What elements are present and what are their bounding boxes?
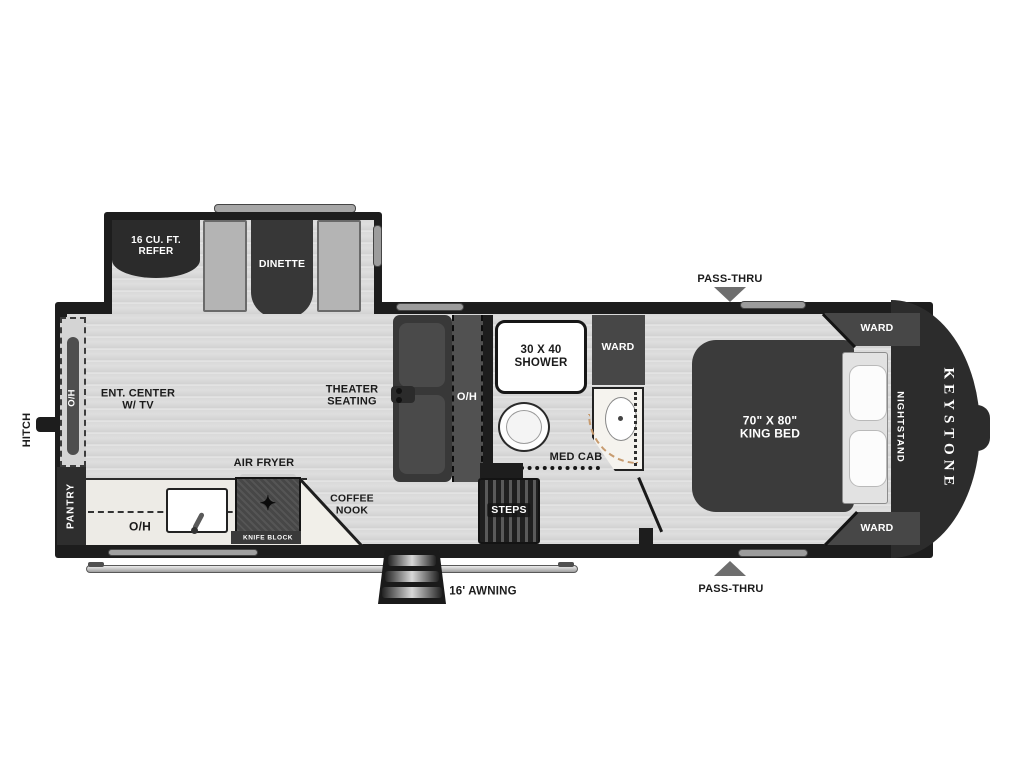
pantry-label: PANTRY: [65, 483, 76, 529]
faucet-base-icon: [191, 527, 198, 534]
pass-thru-bottom-door: [738, 549, 808, 557]
king-bed-label: 70" X 80" KING BED: [740, 415, 800, 442]
air-fryer-label: AIR FRYER: [234, 457, 295, 469]
pillow: [849, 430, 887, 487]
awning-label: 16' AWNING: [449, 586, 517, 599]
dinette-bench-left: [203, 220, 247, 312]
keystone-brand: KEYSTONE: [940, 367, 957, 490]
bath-wall: [483, 315, 493, 482]
steps-label: STEPS: [487, 503, 530, 517]
shower-label: 30 X 40 SHOWER: [515, 344, 568, 370]
hitch-label: HITCH: [21, 413, 33, 448]
cupholder-icon: [396, 388, 402, 394]
overhead-mid-label: O/H: [457, 391, 477, 403]
overhead-left-label: O/H: [68, 389, 79, 407]
pass-thru-top-door: [740, 301, 806, 309]
top-wall-door-tab: [396, 303, 464, 311]
theater-armrest: [391, 386, 415, 403]
bath-ward-label: WARD: [602, 342, 635, 354]
entry-step-tread: [382, 587, 442, 598]
floorplan: PASS-THRU 16 CU. FT. REFER DINETTE HITCH…: [0, 0, 1024, 768]
awning-end-cap: [88, 562, 104, 567]
knife-block-label: KNIFE BLOCK: [243, 534, 293, 541]
awning-bar: [86, 565, 578, 573]
ent-center-label: ENT. CENTER W/ TV: [101, 388, 175, 413]
pass-thru-up-arrow-icon: [714, 561, 746, 576]
burner-icon: ✦: [260, 493, 277, 515]
slideout-window: [373, 225, 382, 267]
entry-step-tread: [385, 571, 439, 582]
bedroom-door-stub: [639, 528, 653, 545]
theater-seat-back: [399, 395, 445, 474]
med-cab-label: MED CAB: [550, 451, 603, 463]
toilet-bowl: [506, 410, 542, 444]
theater-label: THEATER SEATING: [326, 384, 379, 409]
refrigerator-label: 16 CU. FT. REFER: [131, 235, 181, 257]
pass-thru-top-label: PASS-THRU: [697, 273, 762, 285]
cupholder-icon: [396, 397, 402, 403]
lower-compartment-door: [108, 549, 258, 556]
pass-thru-down-arrow-icon: [714, 287, 746, 302]
pass-thru-bottom-label: PASS-THRU: [698, 583, 763, 595]
awning-end-cap: [558, 562, 574, 567]
overhead-kitchen-label: O/H: [129, 520, 151, 533]
med-cab-strip: [520, 466, 600, 470]
entry-step-tread: [388, 555, 436, 566]
coffee-nook-label: COFFEE NOOK: [330, 493, 374, 517]
hitch-stub: [36, 417, 58, 432]
ward-bed-bottom-label: WARD: [861, 523, 894, 535]
theater-seat-back: [399, 323, 445, 387]
dinette-bench-right: [317, 220, 361, 312]
entry-steps: [378, 550, 446, 604]
pillow: [849, 365, 887, 421]
bath-half-wall: [480, 463, 523, 478]
nightstand-label: NIGHTSTAND: [894, 391, 905, 463]
dinette-label: DINETTE: [259, 259, 305, 271]
ward-bed-top-label: WARD: [861, 323, 894, 335]
